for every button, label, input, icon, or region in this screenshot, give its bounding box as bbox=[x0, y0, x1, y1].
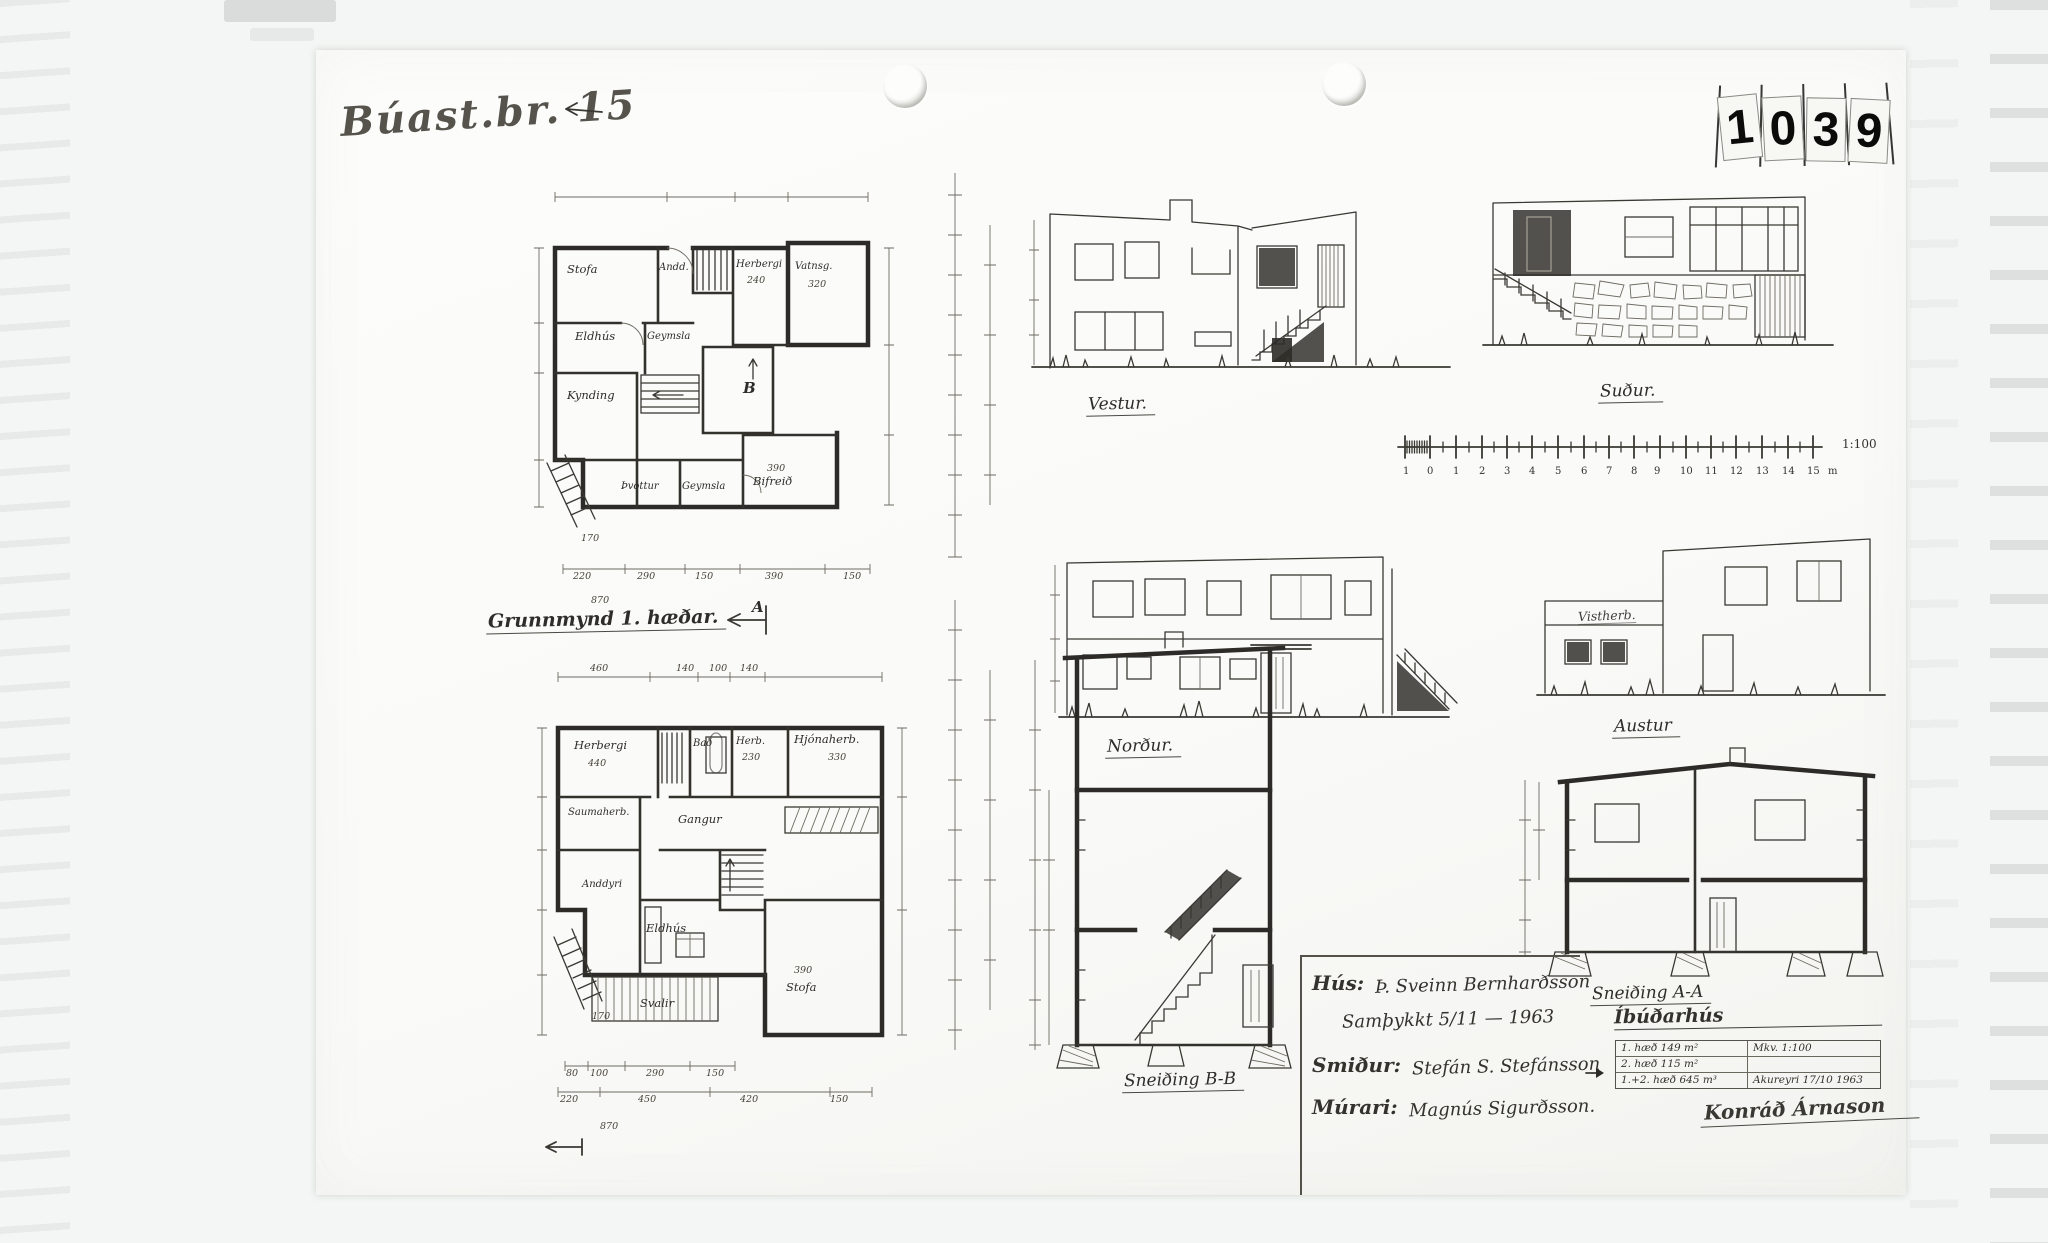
section-b-arrow-icon bbox=[749, 359, 757, 379]
plan-bottom-arrow-icon bbox=[546, 1139, 582, 1155]
area-table-cell: Akureyri 17/10 1963 bbox=[1748, 1073, 1880, 1088]
title-block: Hús: Þ. Sveinn Bernharðsson Samþykkt 5/1… bbox=[1300, 955, 1580, 1195]
room-label: Andd. bbox=[658, 262, 689, 273]
dimension: 100 bbox=[590, 1068, 608, 1079]
svg-text:13: 13 bbox=[1756, 466, 1769, 477]
title-block-mason-label: Múrari: bbox=[1312, 1095, 1398, 1119]
svg-text:14: 14 bbox=[1782, 466, 1795, 477]
area-table: 1. hæð 149 m² Mkv. 1:100 2. hæð 115 m² 1… bbox=[1615, 1040, 1881, 1089]
info-table-heading: Íbúðarhús bbox=[1614, 1002, 1882, 1031]
room-label: Eldhús bbox=[645, 921, 686, 935]
table-pointer-arrow-icon bbox=[1584, 1066, 1606, 1080]
room-label: Geymsla bbox=[682, 481, 725, 492]
room-label: Herb. bbox=[735, 736, 765, 747]
scan-artifact-right bbox=[1990, 0, 2048, 1243]
dimension-ticks bbox=[1519, 780, 1545, 955]
section-a-marker: A bbox=[750, 598, 764, 616]
title-block-house-value: Þ. Sveinn Bernharðsson bbox=[1375, 971, 1591, 998]
dimension: 290 bbox=[645, 1068, 664, 1079]
room-area: 440 bbox=[587, 758, 606, 769]
elevation-west-caption: Vestur. bbox=[1086, 393, 1155, 416]
punch-hole bbox=[1322, 62, 1366, 106]
room-label: Hjónaherb. bbox=[793, 732, 860, 746]
dimension-ticks bbox=[1029, 220, 1039, 365]
section-bb-drawing bbox=[1015, 620, 1345, 1100]
svg-text:12: 12 bbox=[1730, 466, 1743, 477]
room-label: Bifreið bbox=[752, 474, 792, 488]
room-label: Anddyri bbox=[581, 879, 622, 890]
plan-basement-drawing: Stofa Andd. Herbergi 240 Vatnsg. 320 Eld… bbox=[525, 175, 905, 620]
section-bb-caption: Sneiðing B-B bbox=[1122, 1069, 1244, 1094]
scale-ratio: 1:100 bbox=[1842, 437, 1877, 451]
dimension-column bbox=[930, 165, 1020, 565]
section-bb-structure bbox=[1065, 632, 1283, 1045]
room-label: Stofa bbox=[786, 980, 817, 994]
punch-hole bbox=[883, 64, 927, 108]
title-block-carpenter-label: Smiður: bbox=[1312, 1053, 1401, 1077]
dimension: 100 bbox=[709, 663, 727, 674]
svg-text:9: 9 bbox=[1654, 466, 1660, 477]
ground-and-grass bbox=[1483, 332, 1833, 345]
dimension: 150 bbox=[706, 1068, 724, 1079]
area-table-cell: 2. hæð 115 m² bbox=[1616, 1057, 1748, 1073]
svg-text:15: 15 bbox=[1807, 466, 1820, 477]
elevation-south-stair bbox=[1493, 269, 1571, 319]
scan-artifact-left bbox=[0, 0, 70, 1243]
ground-and-grass bbox=[1537, 680, 1885, 695]
room-area: 320 bbox=[808, 279, 826, 290]
ground-and-grass bbox=[1032, 355, 1450, 367]
elevation-west-stair bbox=[1252, 306, 1326, 362]
room-label: Herbergi bbox=[573, 738, 627, 752]
scan-blob bbox=[250, 28, 314, 41]
dimension-total: 870 bbox=[600, 1121, 618, 1132]
dimension: 460 bbox=[589, 663, 608, 674]
svg-text:3: 3 bbox=[1504, 466, 1510, 477]
plan-first-floor-drawing: 460 140 100 140 Herbergi 440 Bað Herb. 2… bbox=[530, 645, 920, 1175]
stamp-digit: 1 bbox=[1717, 93, 1763, 161]
elevation-west-windows bbox=[1075, 242, 1344, 350]
elevation-east-drawing bbox=[1525, 515, 1895, 755]
room-label: Kynding bbox=[566, 388, 615, 402]
scale-bar-numbers: 1 0 1 2 3 4 5 6 7 8 9 10 11 12 13 14 15 … bbox=[1403, 466, 1838, 477]
elevation-south-caption: Suður. bbox=[1598, 380, 1664, 403]
svg-text:2: 2 bbox=[1479, 466, 1485, 477]
dimension: 140 bbox=[740, 663, 758, 674]
dimension: 150 bbox=[830, 1094, 848, 1105]
stamp-digit: 3 bbox=[1805, 97, 1846, 162]
dimension-total: 870 bbox=[591, 595, 609, 606]
room-label: Gangur bbox=[678, 812, 723, 826]
stamp-digit: 9 bbox=[1847, 98, 1890, 164]
dimension: 290 bbox=[636, 571, 655, 582]
dimension-ticks bbox=[1029, 660, 1055, 1050]
dimension: 140 bbox=[676, 663, 694, 674]
elevation-south-stonework bbox=[1573, 275, 1805, 337]
svg-text:6: 6 bbox=[1581, 466, 1587, 477]
section-aa-structure bbox=[1560, 748, 1873, 952]
room-label: Geymsla bbox=[647, 331, 690, 342]
title-block-carpenter-value: Stefán S. Stefánsson bbox=[1412, 1054, 1601, 1080]
room-label: Þvottur bbox=[620, 481, 660, 492]
room-label: Vatnsg. bbox=[795, 261, 832, 272]
elevation-north-stair bbox=[1392, 569, 1457, 715]
section-aa-caption: Sneiðing A-A bbox=[1590, 982, 1712, 1007]
section-b-marker: B bbox=[742, 379, 756, 397]
area-table-cell: Mkv. 1:100 bbox=[1748, 1041, 1880, 1057]
room-label: Bað bbox=[692, 738, 712, 749]
dimension: 420 bbox=[739, 1094, 758, 1105]
room-area: 240 bbox=[746, 275, 765, 286]
dimension: 390 bbox=[765, 571, 783, 582]
annotation-label: Vistherb. bbox=[1578, 607, 1636, 625]
elevation-south-drawing bbox=[1475, 155, 1845, 410]
svg-text:10: 10 bbox=[1680, 466, 1693, 477]
section-a-arrow-icon: A bbox=[716, 596, 774, 638]
scan-blob bbox=[224, 0, 336, 22]
reference-arrow-icon bbox=[556, 96, 606, 128]
svg-text:0: 0 bbox=[1427, 466, 1433, 477]
section-aa-footings bbox=[1549, 952, 1883, 976]
svg-text:5: 5 bbox=[1555, 466, 1561, 477]
dimension: 220 bbox=[559, 1094, 578, 1105]
area-table-cell: 1.+2. hæð 645 m³ bbox=[1616, 1073, 1748, 1088]
elevation-south-openings bbox=[1513, 207, 1798, 276]
room-label: Saumaherb. bbox=[568, 807, 629, 818]
section-bb-footings bbox=[1057, 1045, 1291, 1068]
scale-bar-unit: m bbox=[1828, 466, 1838, 477]
section-bb-stairs bbox=[1130, 870, 1241, 1045]
dimension: 150 bbox=[843, 571, 861, 582]
title-block-approval: Samþykkt 5/11 — 1963 bbox=[1342, 1006, 1555, 1033]
scan-artifact-right-2 bbox=[1910, 0, 1958, 1243]
svg-text:1: 1 bbox=[1403, 466, 1409, 477]
svg-text:11: 11 bbox=[1705, 466, 1718, 477]
svg-text:8: 8 bbox=[1631, 466, 1637, 477]
area-table-cell: 1. hæð 149 m² bbox=[1616, 1041, 1748, 1057]
room-area: 390 bbox=[794, 965, 812, 976]
dimension: 170 bbox=[592, 1011, 610, 1022]
elevation-west-drawing bbox=[1020, 160, 1460, 420]
scale-bar: 1 0 1 2 3 4 5 6 7 8 9 10 11 12 13 14 15 … bbox=[1390, 420, 1890, 482]
svg-text:7: 7 bbox=[1606, 466, 1612, 477]
dimension-column bbox=[930, 590, 1020, 1060]
plan-first-floor-labels: 460 140 100 140 Herbergi 440 Bað Herb. 2… bbox=[559, 663, 860, 1132]
room-label: Eldhús bbox=[574, 329, 615, 343]
stamp-digit: 0 bbox=[1761, 95, 1804, 161]
plan-basement-doors bbox=[621, 248, 761, 493]
svg-text:1: 1 bbox=[1453, 466, 1459, 477]
title-block-house-label: Hús: bbox=[1312, 971, 1364, 995]
balcony-and-railings bbox=[592, 807, 878, 1021]
room-label: Stofa bbox=[567, 262, 598, 276]
elevation-east-windows bbox=[1565, 561, 1841, 691]
svg-text:4: 4 bbox=[1529, 466, 1535, 477]
scale-bar-subdivision bbox=[1407, 441, 1427, 453]
room-label: Herbergi bbox=[735, 259, 782, 270]
dimension: 450 bbox=[637, 1094, 656, 1105]
dimension: 220 bbox=[572, 571, 591, 582]
room-label: Svalir bbox=[640, 996, 676, 1010]
dimension: 170 bbox=[581, 533, 599, 544]
title-block-mason-value: Magnús Sigurðsson. bbox=[1409, 1096, 1596, 1122]
dimension: 150 bbox=[695, 571, 713, 582]
room-area: 390 bbox=[767, 463, 785, 474]
area-table-cell bbox=[1748, 1057, 1880, 1073]
dimension: 80 bbox=[566, 1068, 578, 1079]
room-area: 230 bbox=[741, 752, 760, 763]
plan-first-floor-title: Grunnmynd 1. hæðar. bbox=[486, 605, 727, 634]
room-area: 330 bbox=[828, 752, 846, 763]
section-aa-openings bbox=[1567, 800, 1865, 952]
